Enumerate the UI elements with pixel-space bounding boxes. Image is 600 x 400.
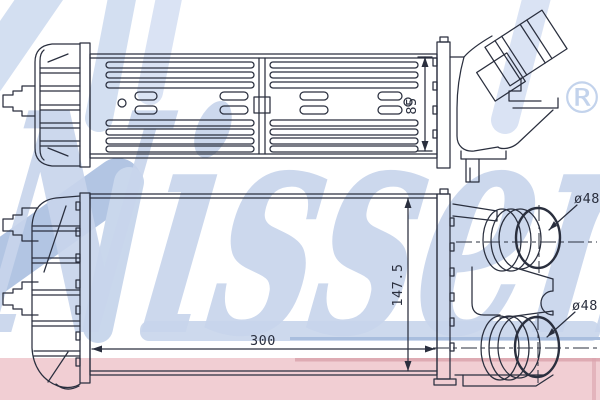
diameter-label-upper: ø48 xyxy=(574,191,600,207)
intercooler-drawing: Nissens ® xyxy=(0,0,600,400)
technical-drawing-page: Nissens ® xyxy=(0,0,600,400)
dimension-label-147-5: 147.5 xyxy=(390,263,406,306)
dimension-label-85: 85 xyxy=(404,97,420,114)
registered-trademark-icon: ® xyxy=(560,73,600,124)
dimension-label-300: 300 xyxy=(250,333,276,349)
diameter-label-lower: ø48 xyxy=(572,298,598,314)
